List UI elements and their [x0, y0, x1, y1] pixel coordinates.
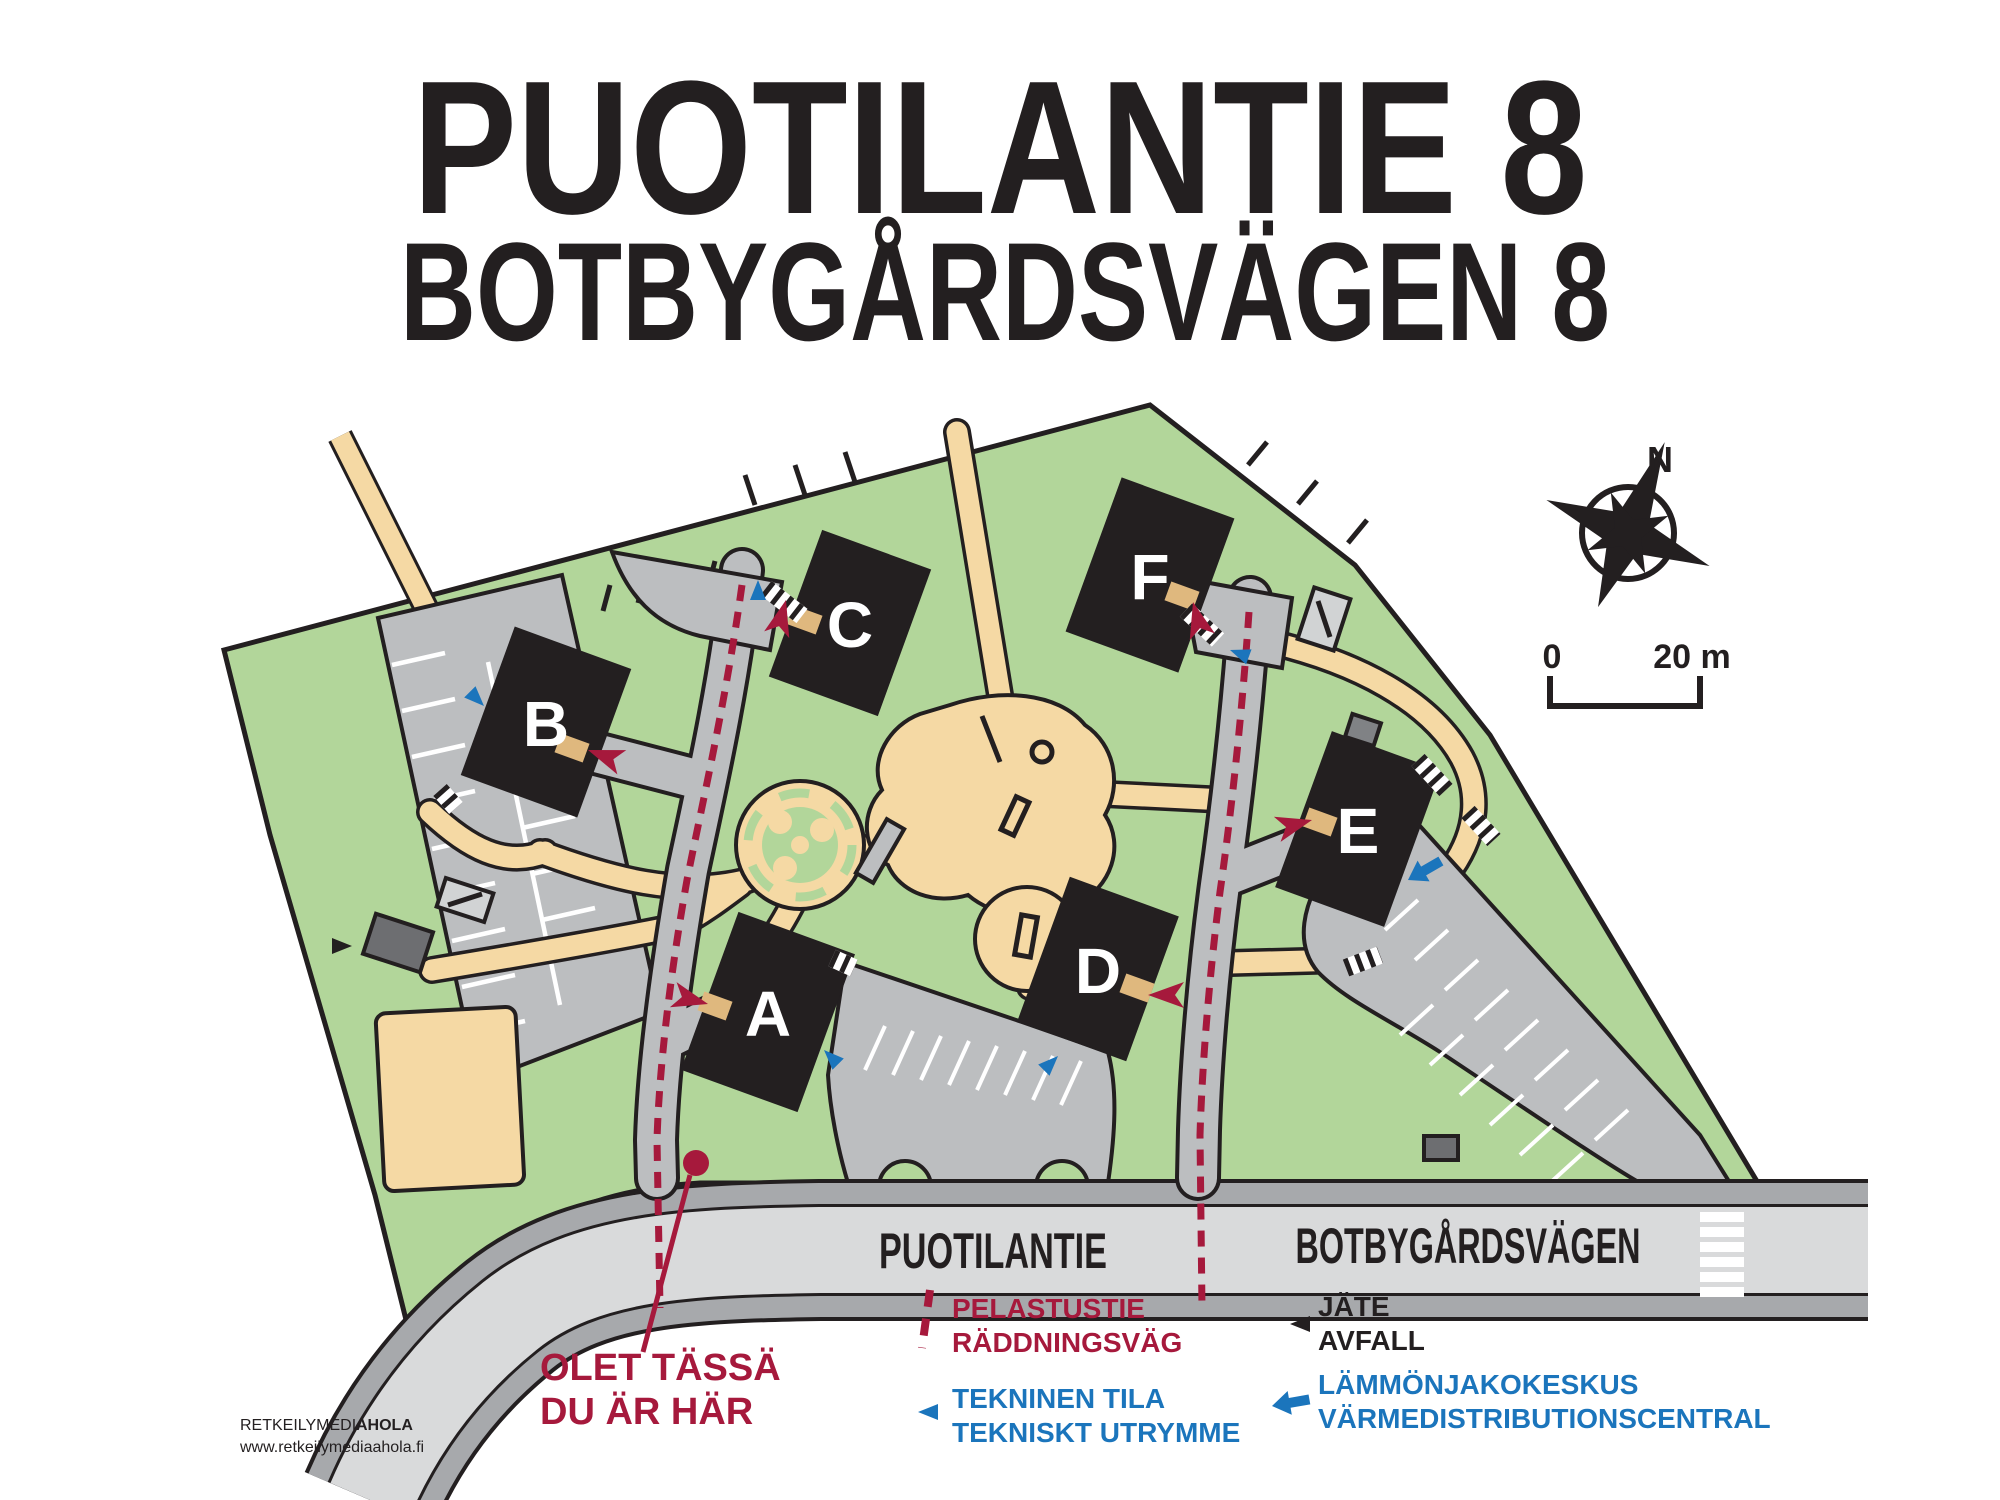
blue-arrow-left-icon	[1270, 1388, 1312, 1418]
blue-triangle-left-icon	[918, 1404, 938, 1420]
street-name-right: BOTBYGÅRDSVÄGEN	[1296, 1218, 1641, 1274]
street-name-left: PUOTILANTIE	[879, 1223, 1107, 1279]
site-map-sign: PUOTILANTIE 8 BOTBYGÅRDSVÄGEN 8	[0, 0, 2000, 1500]
building-C-label: C	[827, 589, 873, 661]
building-A-label: A	[745, 978, 791, 1050]
you-are-here-dot	[683, 1150, 709, 1176]
legend-rescue-fi: PELASTUSTIE	[952, 1293, 1145, 1324]
you-are-here-fi: OLET TÄSSÄ	[540, 1346, 781, 1389]
publisher-name: RETKEILYMEDIA	[240, 1417, 367, 1434]
legend-item-rescue-route: PELASTUSTIE RÄDDNINGSVÄG	[922, 1290, 1182, 1358]
external-paths	[340, 436, 428, 612]
building-F-label: F	[1130, 541, 1169, 613]
legend-technical-fi: TEKNINEN TILA	[952, 1383, 1165, 1414]
legend-waste-fi: JÄTE	[1318, 1291, 1390, 1322]
waste-bin-box	[1424, 1136, 1458, 1160]
page-title-line2: BOTBYGÅRDSVÄGEN 8	[400, 213, 1610, 370]
compass-rose-icon: N	[1516, 409, 1746, 640]
scale-zero-label: 0	[1543, 638, 1562, 676]
scale-bar: 0 20 m	[1543, 638, 1731, 706]
building-B-label: B	[523, 688, 569, 760]
legend-item-technical-room: TEKNINEN TILA TEKNISKT UTRYMME	[918, 1383, 1240, 1448]
sand-play-area	[375, 1006, 524, 1191]
compass-north-label: N	[1647, 439, 1673, 480]
building-E-label: E	[1337, 795, 1380, 867]
legend-heat-sv: VÄRMEDISTRIBUTIONSCENTRAL	[1318, 1403, 1771, 1434]
scale-max-label: 20 m	[1653, 638, 1731, 676]
legend-heat-fi: LÄMMÖNJAKOKESKUS	[1318, 1369, 1638, 1400]
legend-rescue-sv: RÄDDNINGSVÄG	[952, 1327, 1182, 1358]
building-D-label: D	[1075, 935, 1121, 1007]
publisher-website: www.retkeilymediaahola.fi	[239, 1439, 424, 1456]
you-are-here-sv: DU ÄR HÄR	[540, 1390, 753, 1433]
legend-technical-sv: TEKNISKT UTRYMME	[952, 1417, 1240, 1448]
legend-waste-sv: AVFALL	[1318, 1325, 1425, 1356]
playground-carousel	[736, 781, 864, 909]
legend-item-heat-distribution: LÄMMÖNJAKOKESKUS VÄRMEDISTRIBUTIONSCENTR…	[1270, 1369, 1771, 1434]
map-canvas: PUOTILANTIE 8 BOTBYGÅRDSVÄGEN 8	[0, 0, 2000, 1500]
publisher-name-bold: AHOLA	[356, 1417, 413, 1434]
